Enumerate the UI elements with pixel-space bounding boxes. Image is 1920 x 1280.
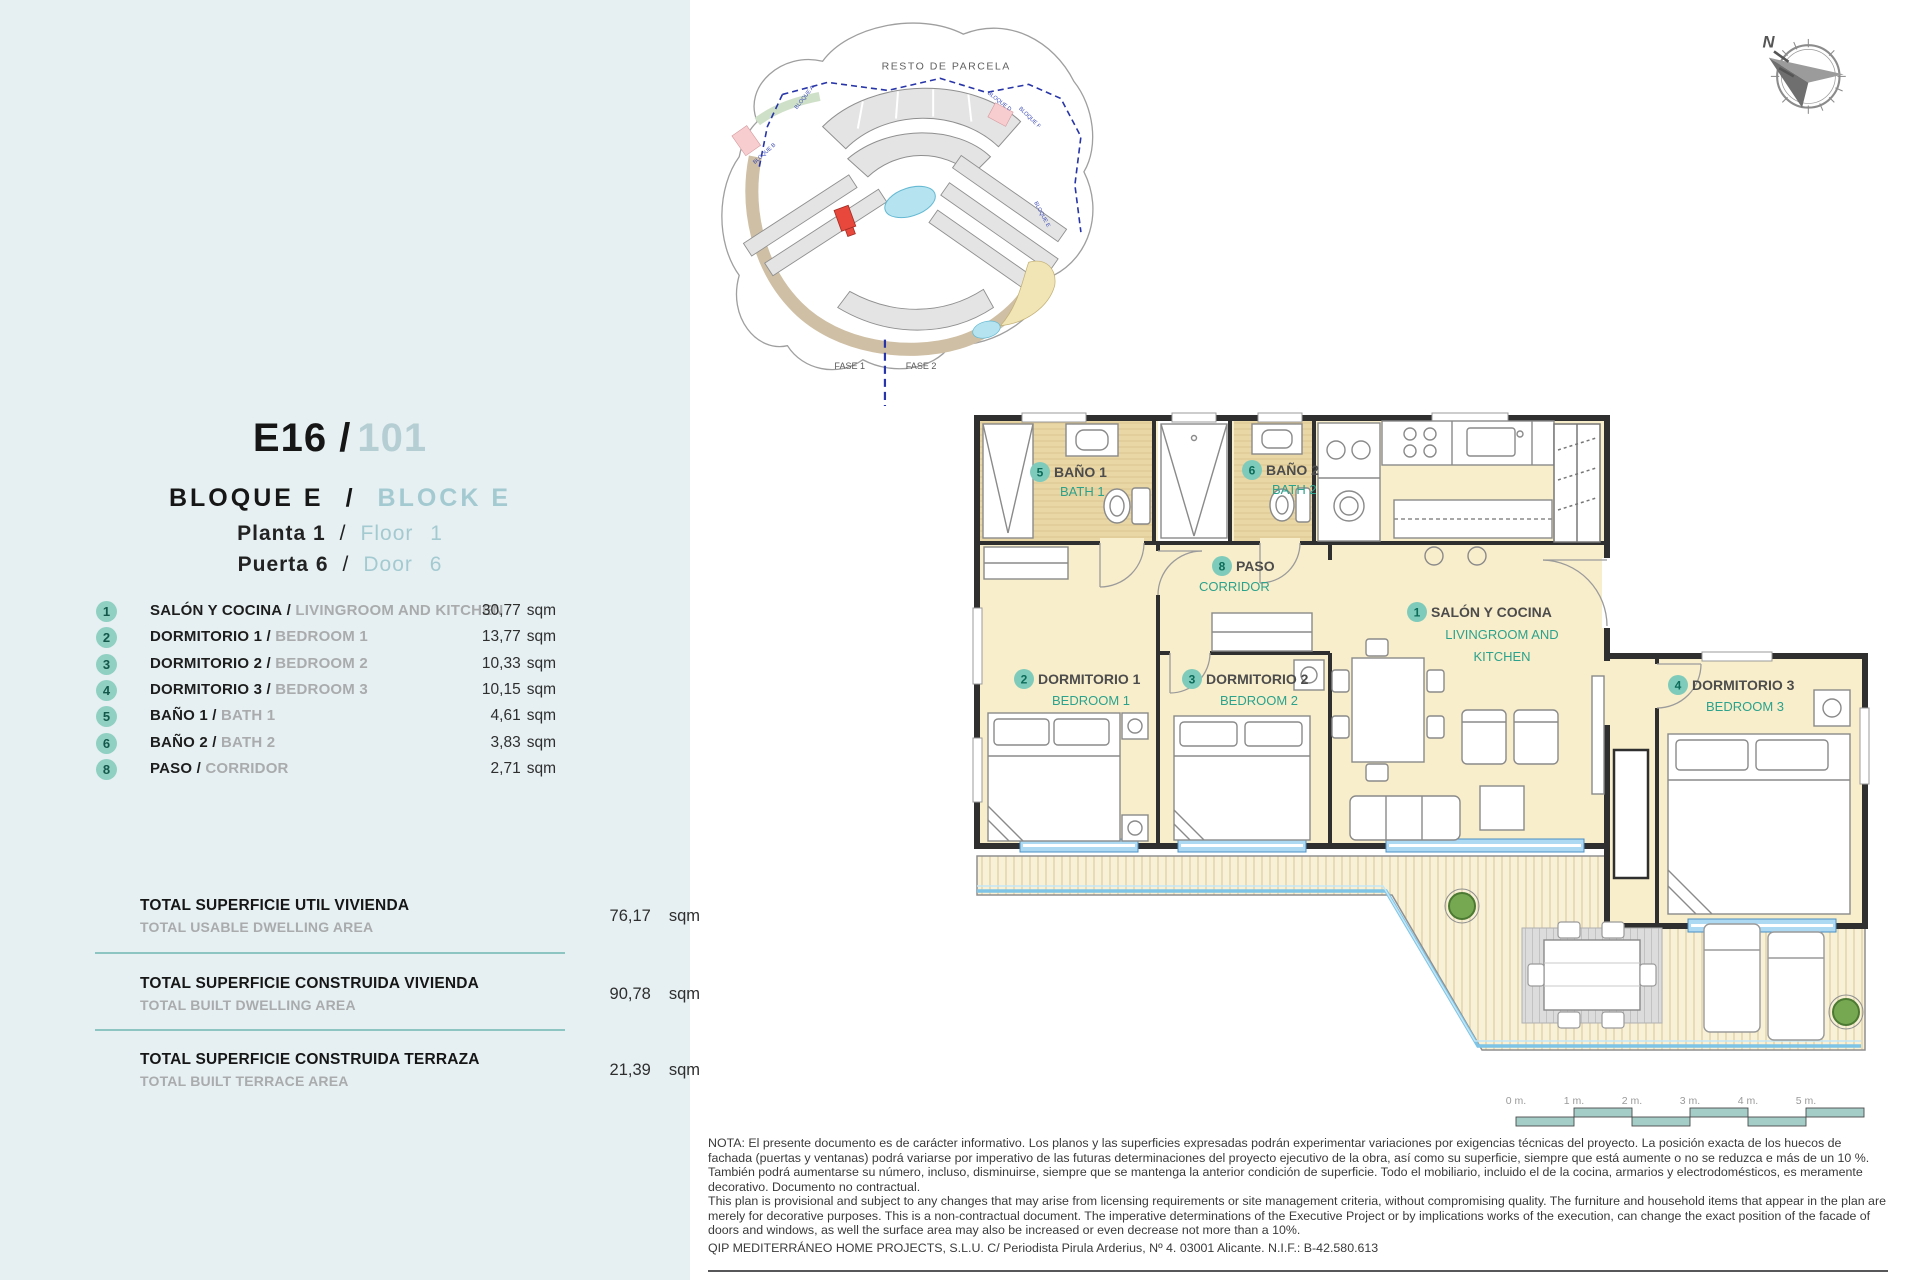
svg-text:4 m.: 4 m. bbox=[1738, 1095, 1758, 1107]
shower-room-fixtures bbox=[1161, 424, 1227, 538]
scale-bar-labels: 0 m. 1 m. 2 m. 3 m. 4 m. 5 m. bbox=[1506, 1095, 1816, 1107]
total-built-terrace-area: TOTAL SUPERFICIE CONSTRUIDA TERRAZA TOTA… bbox=[140, 1051, 560, 1089]
room-area: 3,83sqm bbox=[491, 734, 556, 752]
note-english: This plan is provisional and subject to … bbox=[708, 1194, 1888, 1238]
room-row-bath2: 6 BAÑO 2 / BATH 2 3,83sqm bbox=[96, 732, 556, 758]
page-title: E16 /101 bbox=[60, 416, 620, 461]
room-number-badge: 8 bbox=[96, 759, 117, 780]
room-number-badge: 5 bbox=[96, 706, 117, 727]
room-area: 10,33sqm bbox=[482, 655, 556, 673]
plan-bath1-en: BATH 1 bbox=[1060, 484, 1105, 499]
total-value: 21,39sqm bbox=[468, 1061, 700, 1080]
fase1-label: FASE 1 bbox=[834, 361, 865, 371]
unit-code: E16 / bbox=[253, 416, 351, 460]
plan-corridor-num: 8 bbox=[1219, 560, 1226, 574]
room-label: SALÓN Y COCINA / LIVINGROOM AND KITCHEN bbox=[150, 602, 503, 619]
room-label: DORMITORIO 1 / BEDROOM 1 bbox=[150, 628, 368, 645]
room-row-bedroom1: 2 DORMITORIO 1 / BEDROOM 1 13,77sqm bbox=[96, 626, 556, 652]
info-panel: E16 /101 BLOQUE E/BLOCK E Planta 1/Floor… bbox=[0, 0, 690, 1280]
plan-corridor-en: CORRIDOR bbox=[1199, 579, 1270, 594]
svg-text:5 m.: 5 m. bbox=[1796, 1095, 1816, 1107]
plan-living-num: 1 bbox=[1414, 606, 1421, 620]
plan-bath2-es: BAÑO 2 bbox=[1266, 461, 1319, 478]
floor-label-es: Planta 1 bbox=[237, 522, 326, 545]
block-line: BLOQUE E/BLOCK E bbox=[60, 484, 620, 513]
door-label-en: Door 6 bbox=[363, 553, 442, 576]
room-number-badge: 2 bbox=[96, 627, 117, 648]
plan-bedroom2-en: BEDROOM 2 bbox=[1220, 693, 1298, 708]
svg-text:0 m.: 0 m. bbox=[1506, 1095, 1526, 1107]
plan-bedroom1-en: BEDROOM 1 bbox=[1052, 693, 1130, 708]
room-row-salon: 1 SALÓN Y COCINA / LIVINGROOM AND KITCHE… bbox=[96, 600, 556, 626]
room-row-bedroom3: 4 DORMITORIO 3 / BEDROOM 3 10,15sqm bbox=[96, 679, 556, 705]
compass-icon: N bbox=[1746, 14, 1854, 118]
block-label-en: BLOCK E bbox=[378, 484, 512, 512]
plan-corridor-es: PASO bbox=[1236, 558, 1275, 574]
svg-text:2 m.: 2 m. bbox=[1622, 1095, 1642, 1107]
total-value: 76,17sqm bbox=[468, 907, 700, 926]
divider bbox=[95, 952, 565, 954]
block-separator: / bbox=[346, 484, 356, 512]
room-number-badge: 6 bbox=[96, 733, 117, 754]
svg-text:3 m.: 3 m. bbox=[1680, 1095, 1700, 1107]
floor-separator: / bbox=[340, 522, 347, 545]
door-separator: / bbox=[343, 553, 350, 576]
room-row-bath1: 5 BAÑO 1 / BATH 1 4,61sqm bbox=[96, 705, 556, 731]
plan-bath2-en: BATH 2 bbox=[1272, 482, 1317, 497]
fase2-label: FASE 2 bbox=[906, 361, 937, 371]
site-area-label: RESTO DE PARCELA bbox=[882, 60, 1011, 72]
plan-living-es: SALÓN Y COCINA bbox=[1431, 603, 1552, 620]
note-spanish: NOTA: El presente documento es de caráct… bbox=[708, 1136, 1888, 1194]
entry-closet bbox=[1554, 424, 1600, 542]
plan-bedroom1-es: DORMITORIO 1 bbox=[1038, 671, 1141, 687]
svg-text:1 m.: 1 m. bbox=[1564, 1095, 1584, 1107]
unit-number: 101 bbox=[357, 416, 427, 460]
plan-living-en2: KITCHEN bbox=[1473, 649, 1530, 664]
total-built-dwelling-area: TOTAL SUPERFICIE CONSTRUIDA VIVIENDA TOT… bbox=[140, 975, 560, 1013]
floor-label-en: Floor 1 bbox=[361, 522, 443, 545]
room-label: PASO / CORRIDOR bbox=[150, 760, 289, 777]
site-plan: RESTO DE PARCELA FASE 1 FASE 2 BLOQUE A … bbox=[686, 6, 1110, 408]
plan-bath1-es: BAÑO 1 bbox=[1054, 463, 1107, 480]
plan-bedroom3-en: BEDROOM 3 bbox=[1706, 699, 1784, 714]
room-area: 30,77sqm bbox=[482, 602, 556, 620]
vestibule-wardrobe bbox=[1614, 750, 1648, 878]
sofa bbox=[1350, 796, 1460, 840]
room-area: 13,77sqm bbox=[482, 628, 556, 646]
room-label: DORMITORIO 3 / BEDROOM 3 bbox=[150, 681, 368, 698]
room-area: 10,15sqm bbox=[482, 681, 556, 699]
room-area: 4,61sqm bbox=[491, 707, 556, 725]
plan-bath2-num: 6 bbox=[1249, 464, 1256, 478]
plan-bath1-num: 5 bbox=[1037, 466, 1044, 480]
scale-bar: 0 m. 1 m. 2 m. 3 m. 4 m. 5 m. bbox=[1500, 1093, 1872, 1137]
floor-line: Planta 1/Floor 1 bbox=[60, 522, 620, 546]
bottom-rule bbox=[708, 1270, 1888, 1272]
plan-bedroom3-num: 4 bbox=[1675, 679, 1682, 693]
block-label-es: BLOQUE E bbox=[169, 484, 324, 512]
company-line: QIP MEDITERRÁNEO HOME PROJECTS, S.L.U. C… bbox=[708, 1241, 1888, 1256]
plan-bedroom2-es: DORMITORIO 2 bbox=[1206, 671, 1309, 687]
compass-north-label: N bbox=[1763, 32, 1776, 51]
scale-bar-segments bbox=[1516, 1108, 1864, 1126]
total-usable-area: TOTAL SUPERFICIE UTIL VIVIENDA TOTAL USA… bbox=[140, 897, 560, 935]
room-number-badge: 3 bbox=[96, 654, 117, 675]
terrace-dining-set bbox=[1522, 922, 1662, 1028]
room-number-badge: 4 bbox=[96, 680, 117, 701]
terrace-plant-1 bbox=[1449, 893, 1475, 919]
door-line: Puerta 6/Door 6 bbox=[60, 553, 620, 577]
door-label-es: Puerta 6 bbox=[238, 553, 329, 576]
room-label: DORMITORIO 2 / BEDROOM 2 bbox=[150, 655, 368, 672]
room-number-badge: 1 bbox=[96, 601, 117, 622]
plan-living-en1: LIVINGROOM AND bbox=[1445, 627, 1558, 642]
plan-bedroom3-es: DORMITORIO 3 bbox=[1692, 677, 1795, 693]
tv-unit bbox=[1592, 676, 1604, 794]
room-label: BAÑO 1 / BATH 1 bbox=[150, 707, 275, 724]
disclaimer-note: NOTA: El presente documento es de caráct… bbox=[708, 1136, 1888, 1255]
plan-bedroom1-num: 2 bbox=[1021, 673, 1028, 687]
total-value: 90,78sqm bbox=[468, 985, 700, 1004]
floor-plan: 5 BAÑO 1 BATH 1 6 BAÑO 2 BATH 2 8 PASO C… bbox=[962, 408, 1882, 1058]
room-area: 2,71sqm bbox=[491, 760, 556, 778]
room-row-bedroom2: 3 DORMITORIO 2 / BEDROOM 2 10,33sqm bbox=[96, 653, 556, 679]
room-row-corridor: 8 PASO / CORRIDOR 2,71sqm bbox=[96, 758, 556, 784]
plan-bedroom2-num: 3 bbox=[1189, 673, 1196, 687]
side-table bbox=[1480, 786, 1524, 830]
divider bbox=[95, 1029, 565, 1031]
terrace-plant-2 bbox=[1833, 999, 1859, 1025]
room-label: BAÑO 2 / BATH 2 bbox=[150, 734, 275, 751]
